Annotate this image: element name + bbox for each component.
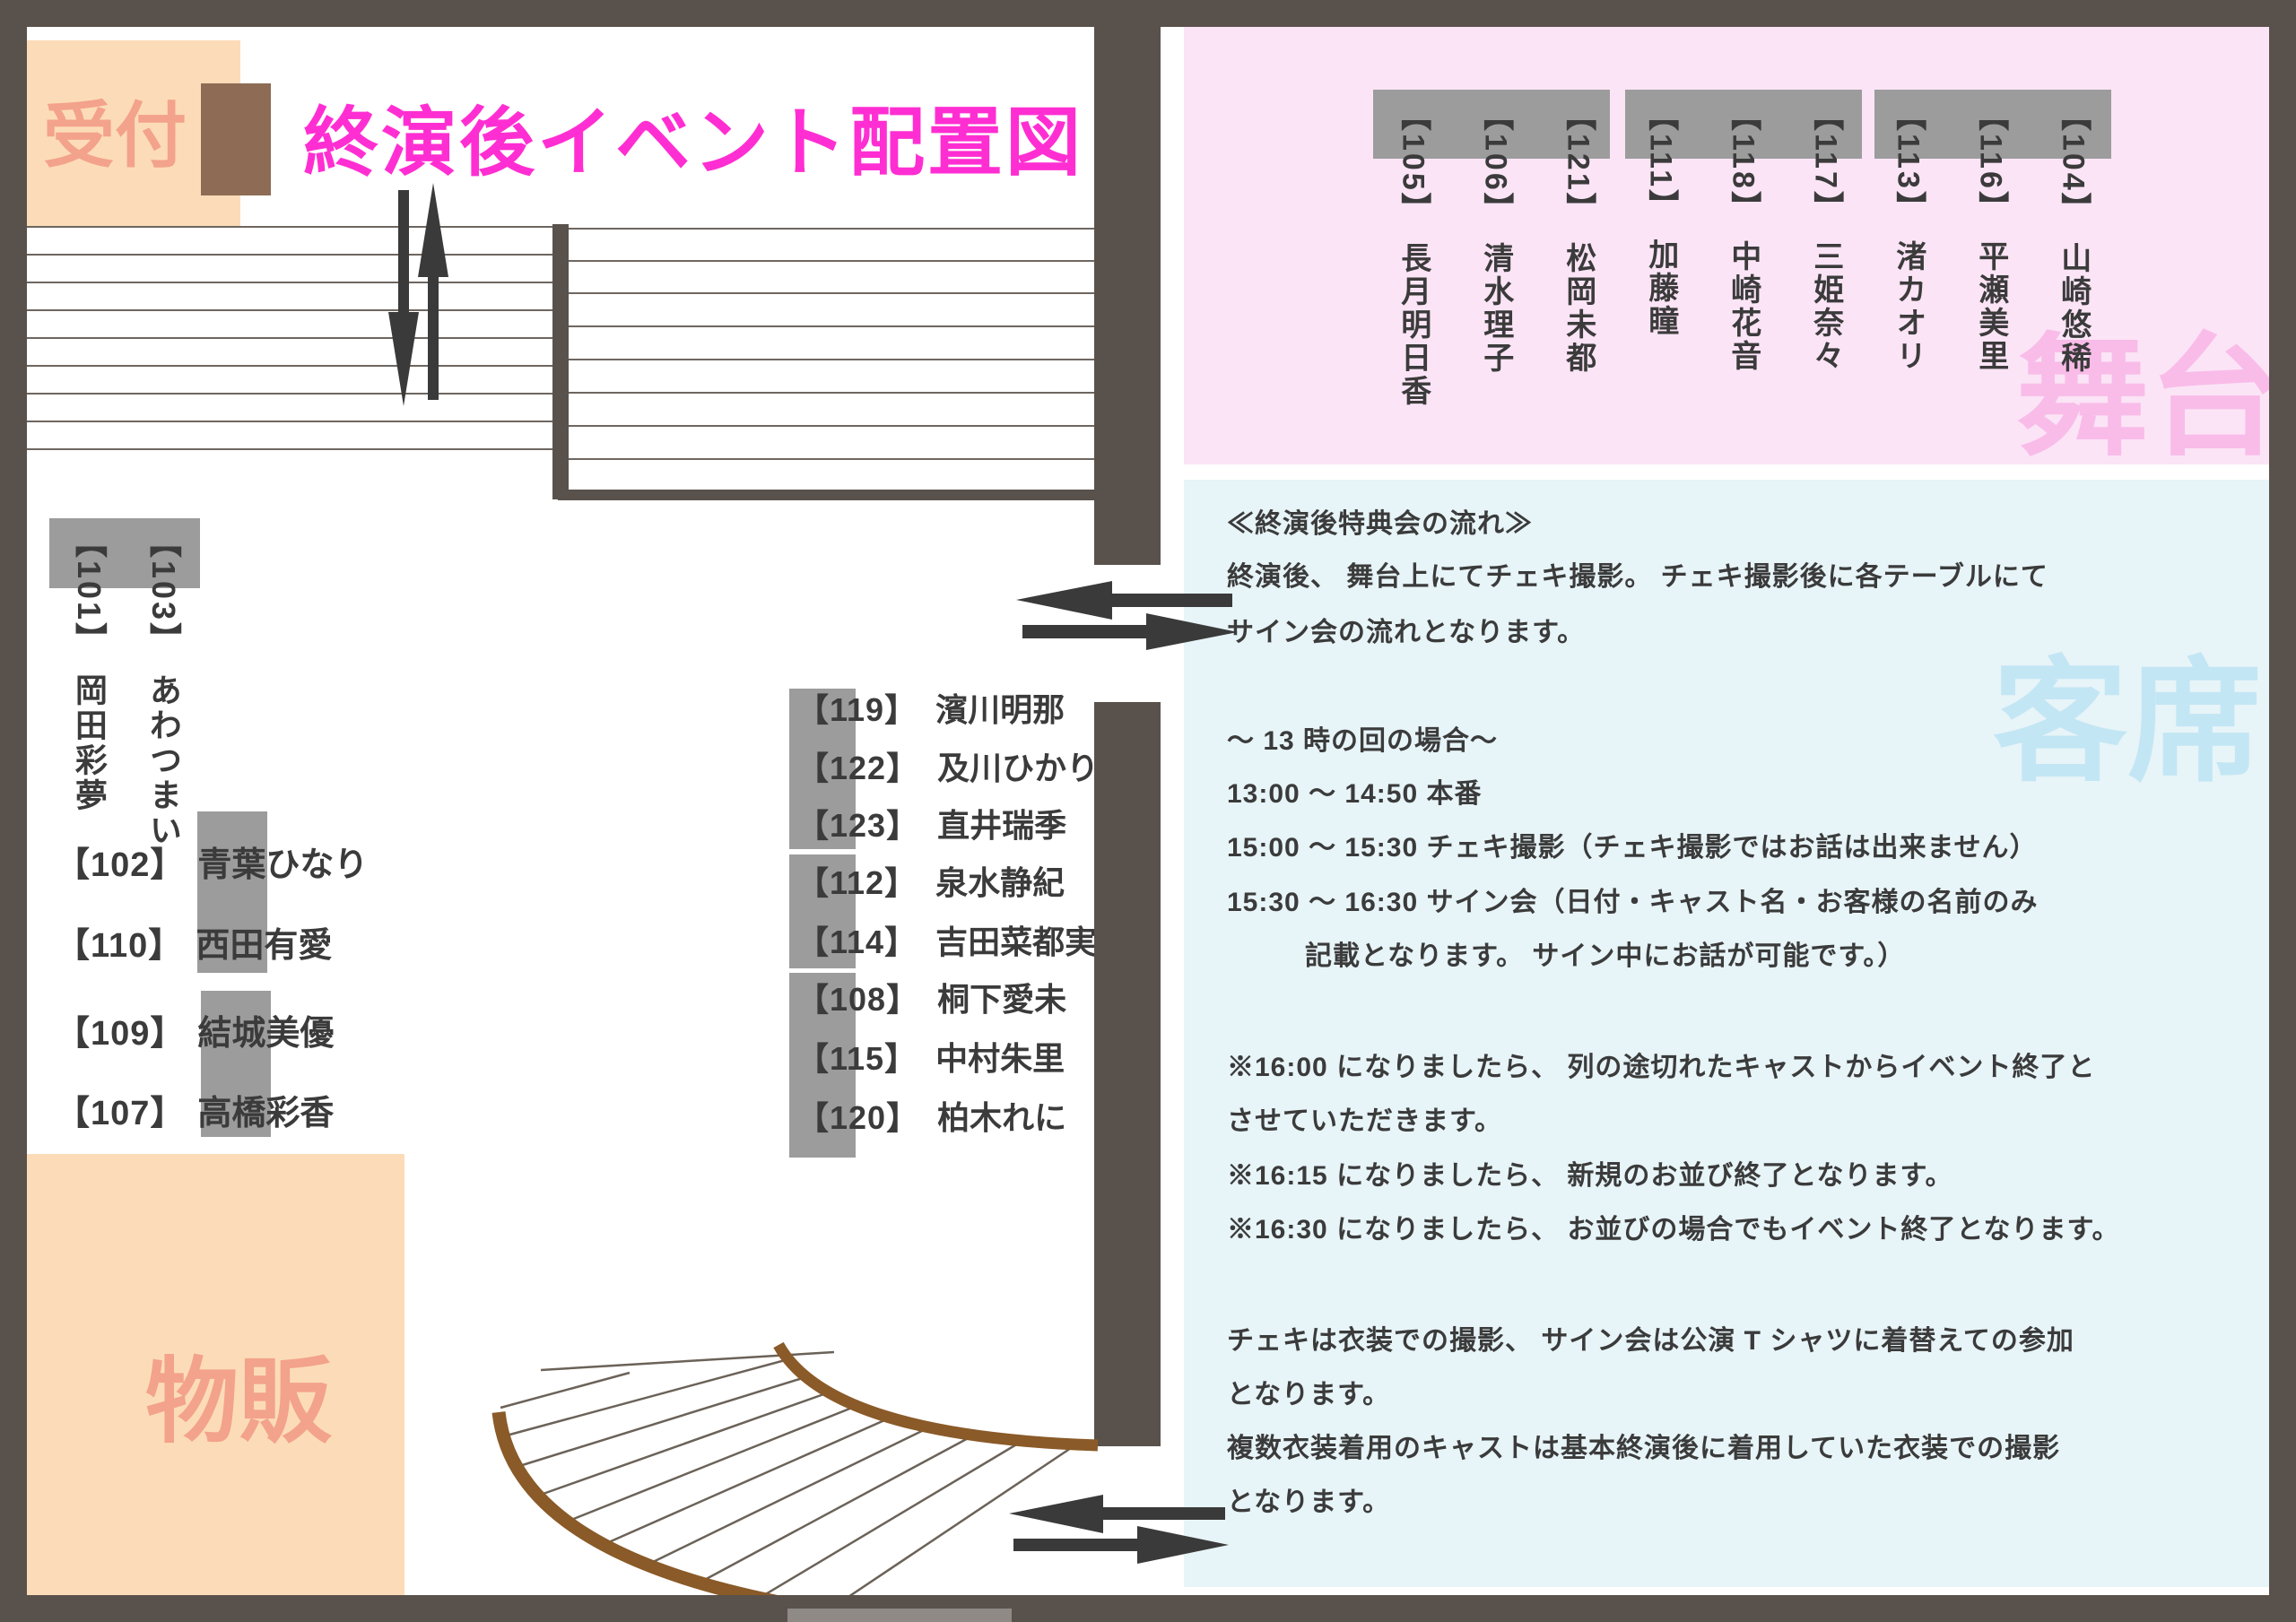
frame-right <box>2269 0 2296 1622</box>
cast-name: 結城美優 <box>197 1017 334 1051</box>
note-line: 13:00 ～ 14:50 本番 <box>1227 781 1482 808</box>
table-number: 【107】 <box>56 1097 185 1131</box>
middle-cast-row: 【108】桐下愛未 <box>796 984 1066 1016</box>
note-line: となります。 <box>1227 1489 1390 1516</box>
cast-name: 長月明日香 <box>1396 242 1431 408</box>
table-number: 【106】 <box>1479 100 1513 226</box>
cast-name: 三姫奈々 <box>1809 240 1843 373</box>
middle-cast-row: 【119】濱川明那 <box>796 694 1065 726</box>
cast-name: 青葉ひなり <box>197 848 368 882</box>
frame-bottom <box>0 1595 2296 1622</box>
table-number: 【112】 <box>796 867 918 899</box>
queue-line <box>27 254 552 256</box>
cast-name: 濱川明那 <box>935 694 1065 726</box>
note-line: となります。 <box>1227 1382 1390 1409</box>
queue-fan <box>500 1352 1076 1611</box>
cast-name: 及川ひかり <box>937 752 1099 785</box>
cast-name: あわつまい <box>145 673 182 848</box>
stage-cast-column: 【116】平瀬美里 <box>1974 100 2007 373</box>
table-number: 【118】 <box>1726 100 1761 224</box>
center-wall-upper <box>1094 27 1161 565</box>
middle-cast-row: 【123】直井瑞季 <box>796 810 1066 842</box>
table-number: 【117】 <box>1809 100 1843 224</box>
table-number: 【108】 <box>796 984 919 1016</box>
stage-cast-column: 【104】山崎悠稀 <box>2057 100 2090 375</box>
cast-name: 吉田菜都実 <box>935 926 1097 958</box>
note-line: 15:00 ～ 15:30 チェキ撮影（チェキ撮影ではお話は出来ません） <box>1227 835 2038 862</box>
center-wall-lower <box>1094 702 1161 1446</box>
notes-heading: ≪終演後特典会の流れ≫ <box>1227 511 1533 538</box>
middle-cast-row: 【114】吉田菜都実 <box>796 926 1097 958</box>
queue-line <box>569 292 1094 294</box>
cast-name: 西田有愛 <box>196 929 332 963</box>
queue-line <box>27 226 552 228</box>
queue-line <box>27 448 552 450</box>
queue-line <box>569 228 1094 230</box>
queue-line <box>569 458 1094 460</box>
stage-cast-column: 【121】松岡未都 <box>1561 100 1595 375</box>
table-number: 【119】 <box>796 694 918 726</box>
cast-name: 加藤瞳 <box>1644 239 1678 338</box>
note-line: チェキは衣装での撮影、 サイン会は公演 T シャツに着替えての参加 <box>1227 1328 2074 1355</box>
note-line: させていただきます。 <box>1227 1108 1502 1135</box>
cast-name: 平瀬美里 <box>1974 240 2008 373</box>
down-arrow-icon <box>388 190 419 406</box>
stage-cast-column: 【117】三姫奈々 <box>1809 100 1842 373</box>
cast-name: 高橋彩香 <box>197 1097 334 1131</box>
table-number: 【104】 <box>2057 100 2091 226</box>
stage-cast-column: 【105】長月明日香 <box>1396 100 1430 408</box>
queue-line <box>27 421 552 422</box>
entrance-block <box>201 83 271 195</box>
stage-cast-column: 【113】渚カオリ <box>1892 100 1925 373</box>
table-number: 【121】 <box>1561 100 1596 226</box>
cast-name: 直井瑞季 <box>937 810 1066 842</box>
doorway-notch <box>787 1609 1012 1622</box>
table-number: 【109】 <box>56 1017 185 1051</box>
queue-line <box>27 309 552 311</box>
queue-line <box>27 393 552 395</box>
wall-cast-column: 【101】岡田彩夢 <box>71 525 106 813</box>
note-line: ～ 13 時の回の場合～ <box>1227 728 1498 755</box>
table-number: 【102】 <box>56 848 185 882</box>
left-cast-row: 【110】西田有愛 <box>56 929 332 963</box>
cast-name: 桐下愛未 <box>937 984 1066 1016</box>
queue-line <box>569 425 1094 427</box>
cast-name: 岡田彩夢 <box>71 673 108 813</box>
queue-line <box>27 337 552 339</box>
table-number: 【113】 <box>1892 100 1926 224</box>
queue-line <box>569 260 1094 262</box>
queue-line <box>569 359 1094 360</box>
cast-name: 渚カオリ <box>1892 240 1926 373</box>
note-line: 複数衣装着用のキャストは基本終演後に着用していた衣装での撮影 <box>1227 1436 2060 1462</box>
audience-watermark-label: 客席 <box>1993 655 2262 789</box>
note-line: ※16:15 になりましたら、 新規のお並び終了となります。 <box>1227 1163 1953 1190</box>
cast-name: 山崎悠稀 <box>2057 242 2091 375</box>
cast-name: 清水理子 <box>1479 242 1513 375</box>
cast-name: 泉水静紀 <box>935 867 1065 899</box>
middle-cast-row: 【122】及川ひかり <box>796 752 1099 785</box>
left-cast-row: 【107】高橋彩香 <box>56 1097 334 1131</box>
note-line: 15:30 ～ 16:30 サイン会（日付・キャスト名・お客様の名前のみ <box>1227 889 2038 916</box>
left-cast-row: 【109】結城美優 <box>56 1017 334 1051</box>
queue-divider-wall <box>552 224 569 499</box>
table-number: 【103】 <box>145 525 182 657</box>
table-number: 【122】 <box>796 752 919 785</box>
stage-cast-column: 【118】中崎花音 <box>1726 100 1760 373</box>
stage-cast-column: 【106】清水理子 <box>1479 100 1512 375</box>
queue-bottom-wall <box>558 490 1094 500</box>
table-number: 【123】 <box>796 810 919 842</box>
queue-rail-icon <box>499 1345 1098 1615</box>
queue-line <box>569 325 1094 327</box>
frame-top <box>0 0 2296 27</box>
wall-cast-column: 【103】あわつまい <box>145 525 180 848</box>
table-number: 【120】 <box>796 1102 919 1134</box>
table-number: 【110】 <box>56 929 183 963</box>
cast-name: 松岡未都 <box>1561 242 1596 375</box>
reception-label: 受付 <box>43 100 187 172</box>
note-line: ※16:00 になりましたら、 列の途切れたキャストからイベント終了と <box>1227 1054 2095 1081</box>
table-number: 【115】 <box>796 1043 918 1075</box>
left-cast-row: 【102】青葉ひなり <box>56 848 368 882</box>
stage-cast-column: 【111】加藤瞳 <box>1644 100 1677 338</box>
table-number: 【101】 <box>71 525 108 657</box>
note-line: 終演後、 舞台上にてチェキ撮影。 チェキ撮影後に各テーブルにて <box>1227 564 2048 591</box>
middle-cast-row: 【115】中村朱里 <box>796 1043 1065 1075</box>
up-arrow-icon <box>418 183 448 400</box>
note-line: 記載となります。 サイン中にお話が可能です。） <box>1305 943 1905 970</box>
note-line: ※16:30 になりましたら、 お並びの場合でもイベント終了となります。 <box>1227 1217 2120 1244</box>
cast-name: 中崎花音 <box>1726 240 1761 373</box>
middle-cast-row: 【120】柏木れに <box>796 1102 1066 1134</box>
page-title: 終演後イベント配置図 <box>303 82 1083 191</box>
table-number: 【116】 <box>1974 100 2008 224</box>
middle-cast-row: 【112】泉水静紀 <box>796 867 1065 899</box>
table-number: 【105】 <box>1396 100 1431 226</box>
floor-plan: 受付 物販 舞台 客席 終演後イベント配置図 【105】長月明日香 【106】清… <box>0 0 2296 1622</box>
cast-name: 中村朱里 <box>935 1043 1065 1075</box>
table-number: 【111】 <box>1644 100 1678 222</box>
note-line: サイン会の流れとなります。 <box>1227 620 1585 646</box>
queue-line <box>27 282 552 283</box>
merch-label: 物販 <box>145 1356 332 1449</box>
queue-line <box>569 392 1094 394</box>
cast-name: 柏木れに <box>937 1102 1066 1134</box>
queue-line <box>27 365 552 367</box>
table-number: 【114】 <box>796 926 918 958</box>
frame-left <box>0 0 27 1622</box>
